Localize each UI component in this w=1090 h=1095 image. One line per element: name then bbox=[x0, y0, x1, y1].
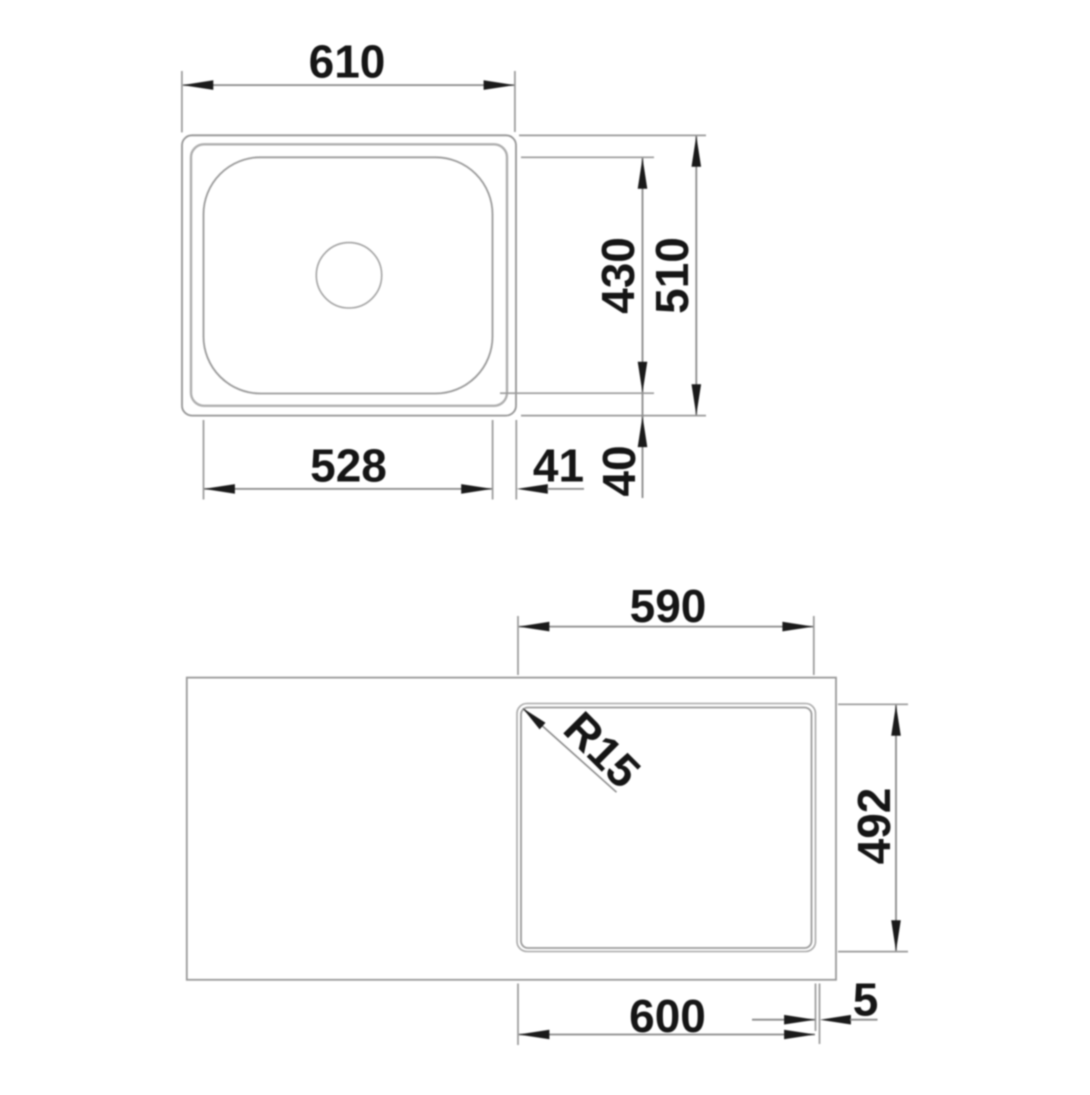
svg-text:40: 40 bbox=[593, 445, 645, 496]
svg-text:5: 5 bbox=[853, 974, 879, 1026]
svg-text:528: 528 bbox=[310, 440, 387, 492]
svg-text:610: 610 bbox=[309, 36, 386, 88]
svg-text:510: 510 bbox=[646, 237, 698, 314]
svg-text:492: 492 bbox=[848, 788, 900, 865]
svg-text:590: 590 bbox=[630, 580, 707, 632]
svg-text:430: 430 bbox=[592, 237, 644, 314]
svg-text:41: 41 bbox=[533, 440, 584, 492]
svg-text:600: 600 bbox=[629, 990, 706, 1042]
